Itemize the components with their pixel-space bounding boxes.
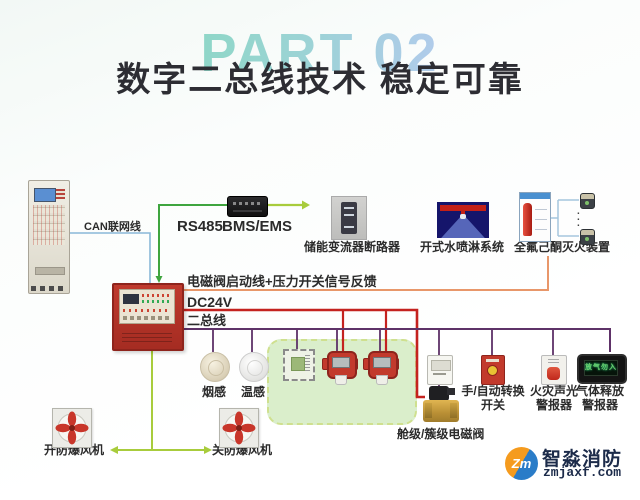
sound-light-alarm — [541, 355, 567, 385]
manual-auto-switch — [481, 355, 505, 385]
close-explosion-proof-fan — [219, 408, 259, 448]
connection-lines — [0, 0, 640, 500]
composite-detector — [283, 349, 315, 381]
cabinet-feet — [31, 286, 67, 291]
fan-blades-icon — [220, 409, 258, 447]
fire-alarm-panel — [112, 283, 184, 351]
gas-release-alarm: 放气勿入 — [577, 354, 627, 384]
cabinet-buttons — [56, 189, 65, 199]
h2-detector — [364, 349, 398, 383]
storage-converter-breaker — [331, 196, 367, 240]
ellipsis-dots: ... — [577, 209, 580, 228]
water-spray-system — [437, 202, 489, 238]
cabinet-label-strip — [35, 267, 65, 275]
gas-extinguishing-cabinet — [519, 192, 551, 242]
open-explosion-proof-fan — [52, 408, 92, 448]
slide: PART 02 数字二总线技术 稳定可靠 — [0, 0, 640, 500]
smoke-detector — [200, 352, 230, 382]
solenoid-valve — [423, 386, 459, 426]
co-detector — [323, 349, 357, 383]
heat-detector — [239, 352, 269, 382]
bms-device — [227, 196, 268, 217]
spray-nozzle-2 — [580, 229, 595, 245]
cabinet-modules — [33, 205, 65, 245]
fan-blades-icon — [53, 409, 91, 447]
pressure-switch — [427, 355, 453, 385]
gas-release-screen: 放气勿入 — [584, 360, 618, 376]
brand-logo-icon: Zm — [505, 447, 538, 480]
cabinet-screen — [34, 188, 56, 202]
spray-nozzle-1 — [580, 193, 595, 209]
fire-control-cabinet — [28, 180, 70, 294]
